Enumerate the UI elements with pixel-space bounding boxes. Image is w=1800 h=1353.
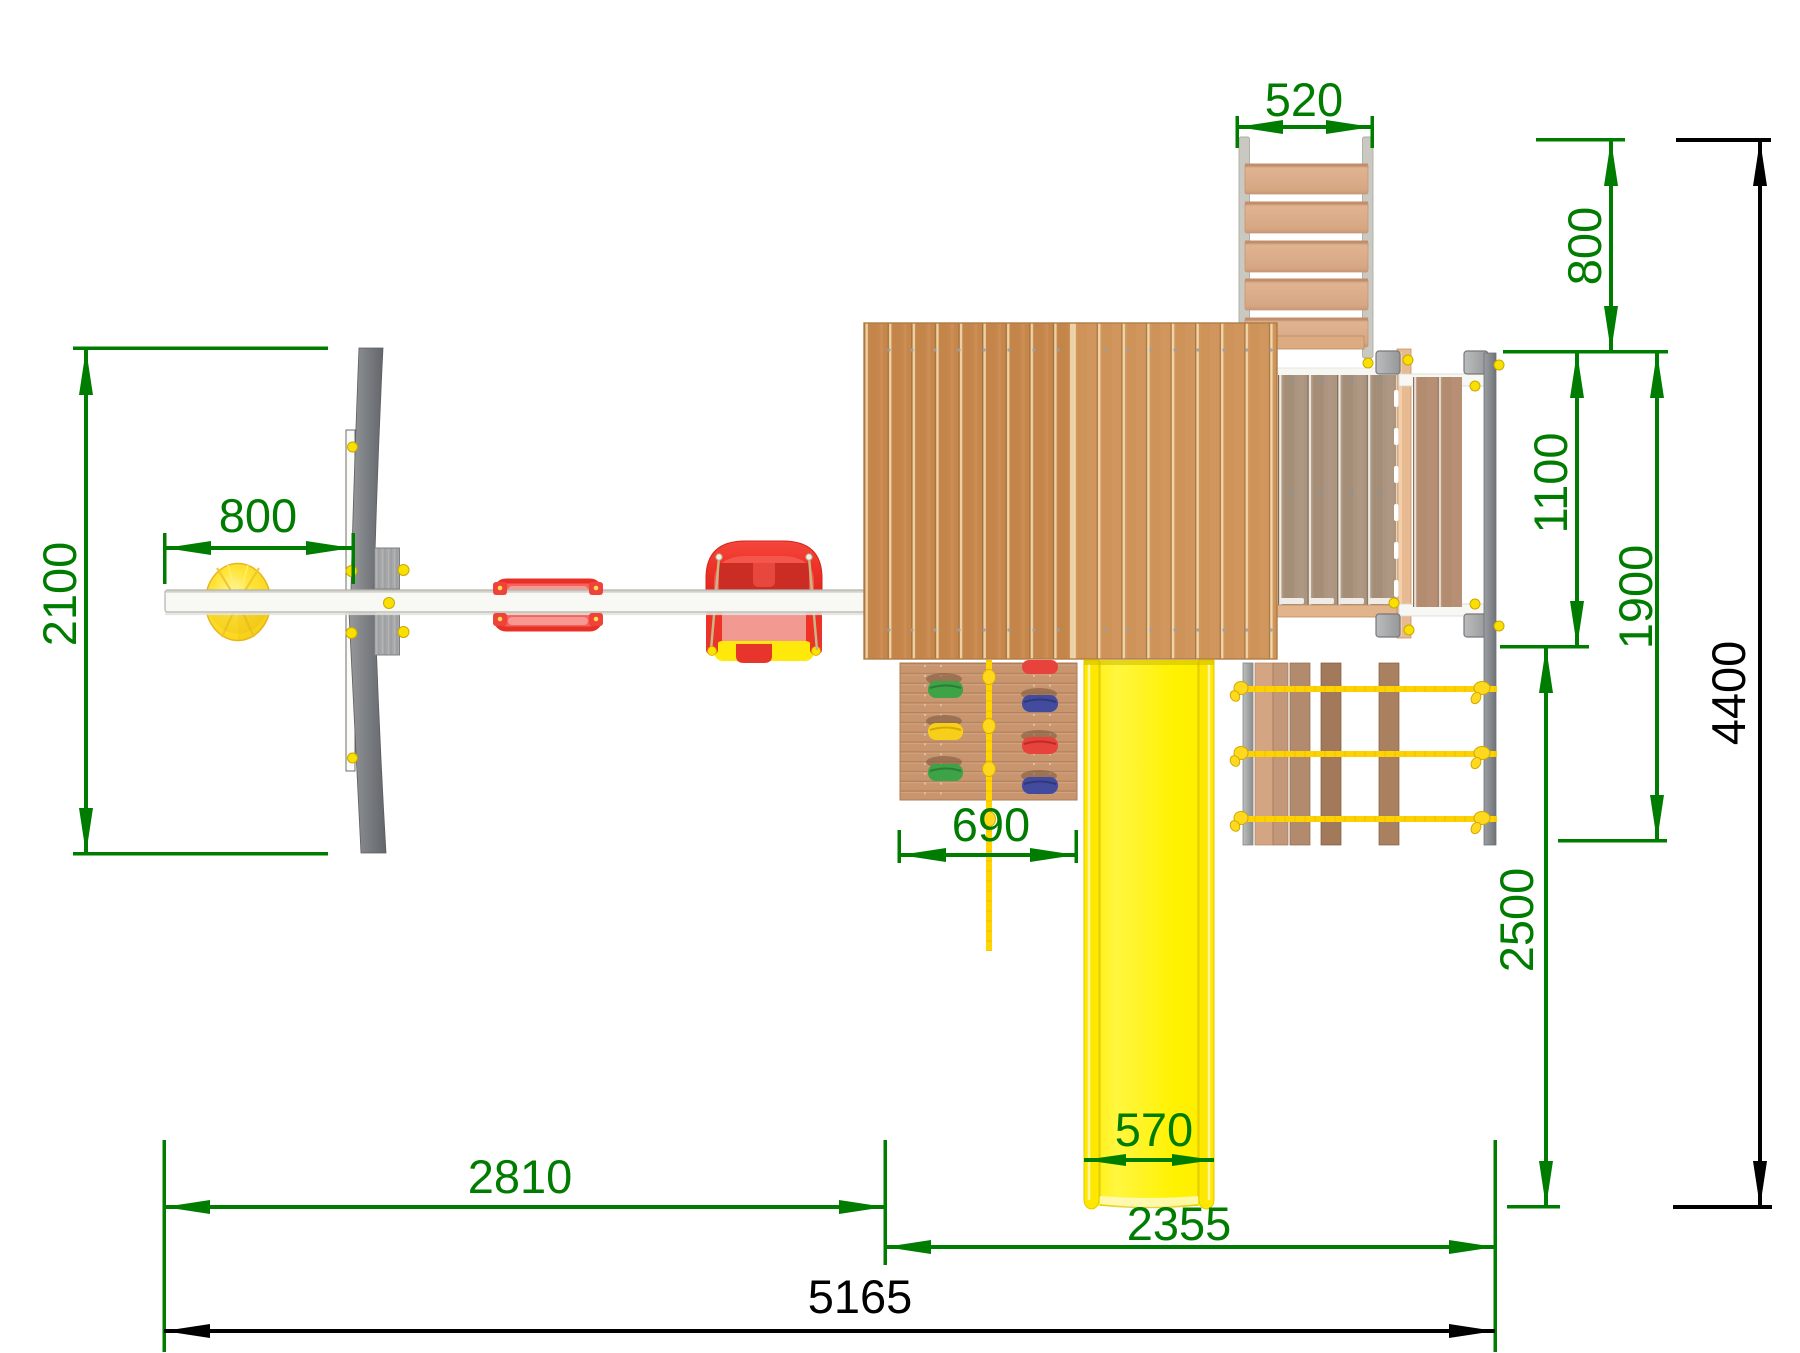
svg-text:1100: 1100 — [1524, 432, 1577, 533]
svg-text:800: 800 — [219, 489, 297, 542]
svg-text:2100: 2100 — [33, 542, 86, 647]
svg-text:690: 690 — [952, 798, 1030, 851]
svg-text:2355: 2355 — [1127, 1197, 1232, 1250]
svg-text:2810: 2810 — [468, 1150, 573, 1203]
svg-text:800: 800 — [1558, 207, 1611, 285]
svg-text:4400: 4400 — [1702, 641, 1755, 746]
svg-text:5165: 5165 — [808, 1270, 913, 1323]
svg-text:570: 570 — [1115, 1103, 1193, 1156]
svg-text:1900: 1900 — [1609, 545, 1662, 650]
svg-text:2500: 2500 — [1490, 868, 1543, 973]
svg-text:520: 520 — [1265, 73, 1343, 126]
